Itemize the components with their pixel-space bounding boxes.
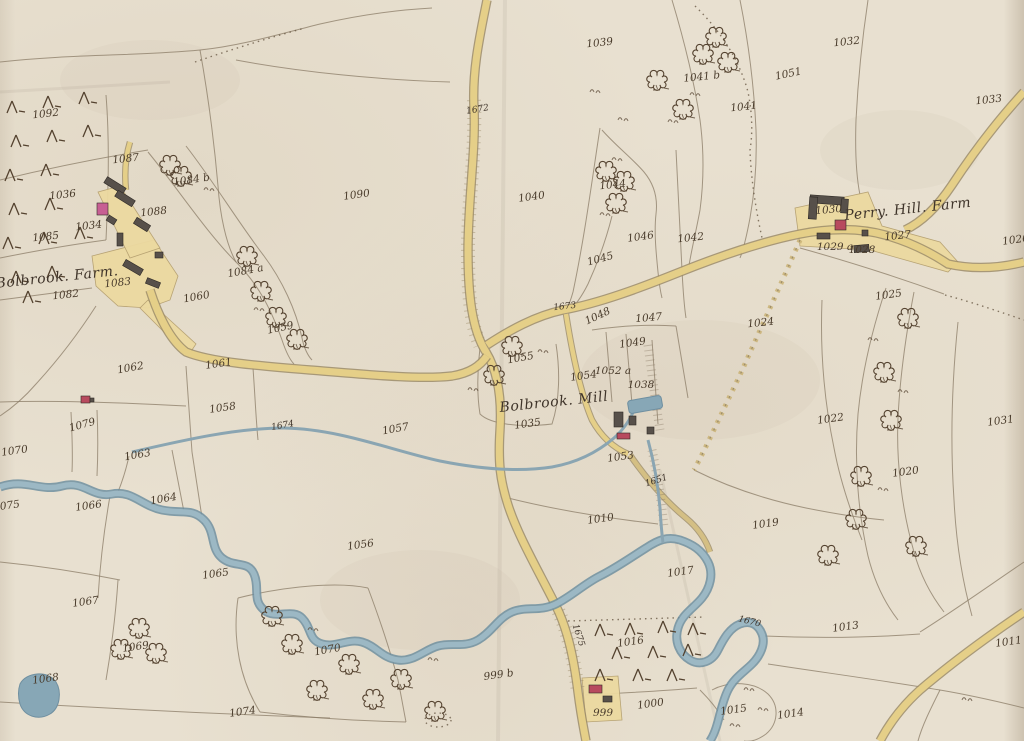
parcel-number-label: 1057	[381, 421, 410, 438]
grass-tuft-icon	[962, 698, 972, 701]
tree-icon	[673, 99, 695, 119]
parcel-number-label: 999 b	[483, 667, 515, 683]
parcel-number-label: 1024	[747, 316, 775, 331]
plantation-icon	[667, 669, 685, 681]
tree-icon	[693, 44, 715, 64]
parcel-number-label: 1055	[506, 350, 535, 367]
parcel-number-label: 1065	[202, 566, 230, 582]
tree-icon	[881, 410, 903, 430]
parcel-number-label: 1020	[892, 464, 920, 480]
tree-icon	[706, 27, 728, 47]
plantation-icon	[3, 237, 21, 249]
parcel-number-label: 999	[593, 707, 613, 719]
parcel-number-label: 1079	[68, 416, 97, 435]
parcel-number-label: 1016	[617, 634, 645, 650]
parcel-number-label: 1041	[730, 100, 758, 115]
tree-icon	[363, 689, 385, 709]
tree-icon	[718, 52, 740, 72]
tree-icon	[287, 329, 309, 349]
parcel-number-label: 1036	[49, 188, 77, 203]
tree-icon	[425, 701, 447, 721]
place-name-label: Bolbrook. Mill	[498, 389, 609, 416]
grass-tuft-icon	[600, 213, 610, 216]
tree-icon	[647, 70, 669, 90]
grass-tuft-icon	[744, 688, 754, 691]
outbuilding	[90, 398, 94, 402]
plantation-icon	[23, 291, 41, 303]
outbuilding	[155, 252, 163, 258]
grass-tuft-icon	[878, 488, 888, 491]
parcel-number-label: 1042	[677, 231, 705, 246]
parcel-number-label: 1031	[987, 413, 1015, 429]
parcel-number-label: 1056	[347, 537, 375, 553]
tree-icon	[307, 680, 329, 700]
parcel-number-label: 1019	[752, 516, 780, 532]
plantation-icon	[648, 646, 666, 658]
parcel-number-label: 1044	[599, 178, 627, 193]
parcel-number-label: 1011	[995, 634, 1023, 650]
grass-tuft-icon	[612, 158, 622, 161]
grass-tuft-icon	[468, 388, 478, 391]
tree-icon	[906, 536, 928, 556]
parcel-number-label: 1063	[123, 447, 152, 464]
plantation-icon	[625, 623, 643, 635]
parcel-number-label: 1064	[149, 491, 177, 507]
historic-map: 167216731674167516701651 10391041 b10411…	[0, 0, 1024, 741]
grass-tuft-icon	[618, 118, 628, 121]
parcel-number-label: 1075	[0, 498, 21, 514]
parcel-number-label: 1041 b	[683, 69, 721, 85]
parcel-number-label: 1070	[1, 443, 29, 459]
tree-icon	[874, 362, 896, 382]
parcel-number-label: 1010	[587, 511, 615, 527]
outbuilding	[614, 412, 623, 427]
outbuilding	[817, 233, 830, 239]
outbuilding	[647, 427, 654, 434]
route-number-label: 1674	[271, 419, 296, 433]
tree-icon	[282, 634, 304, 654]
grass-tuft-icon	[590, 90, 600, 93]
parcel-number-label: 1022	[817, 411, 845, 427]
parcel-number-label: 1074	[229, 704, 257, 720]
house	[97, 203, 108, 215]
parcel-number-label: 1017	[667, 564, 695, 580]
tree-icon	[606, 193, 628, 213]
parcel-number-label: 1025	[875, 287, 903, 303]
house	[81, 396, 90, 403]
parcel-number-label: 1061	[205, 356, 233, 372]
parcel-number-label: 1028	[849, 244, 876, 256]
house	[617, 433, 630, 439]
parcel-number-label: 1062	[116, 360, 145, 377]
house	[589, 685, 602, 693]
tree-icon	[160, 155, 182, 175]
parcel-number-label: 1034	[75, 219, 103, 234]
tree-icon	[146, 643, 168, 663]
parcel-number-label: 1045	[586, 250, 615, 269]
grass-tuft-icon	[204, 188, 214, 191]
tree-icon	[851, 466, 873, 486]
parcel-number-label: 1090	[343, 187, 371, 203]
parcel-number-label: 1084 b	[173, 171, 211, 188]
grass-tuft-icon	[538, 350, 548, 353]
parcel-number-label: 1014	[777, 706, 805, 722]
tree-icon	[818, 545, 840, 565]
grass-tuft-icon	[730, 724, 740, 727]
outbuilding	[117, 233, 123, 246]
parcel-number-label: 1035	[514, 416, 542, 432]
parcel-number-label: 1030	[815, 203, 843, 217]
plantation-icon	[11, 135, 29, 147]
parcel-number-label: 1092	[32, 107, 60, 122]
tree-icon	[339, 654, 361, 674]
parcel-number-label: 1015	[720, 702, 748, 718]
ponds	[19, 395, 663, 717]
parcel-number-label: 1082	[52, 288, 80, 303]
plantation-icon	[47, 130, 65, 142]
parcel-number-label: 1088	[140, 205, 168, 220]
parcel-number-label: 1087	[112, 152, 140, 167]
outbuilding	[603, 696, 612, 702]
outbuilding	[862, 230, 868, 236]
farmyards	[92, 186, 958, 722]
parcel-number-label: 1040	[518, 189, 546, 205]
plantation-icon	[633, 669, 651, 681]
parcel-number-label: 1038	[628, 379, 655, 391]
parcel-number-label: 1066	[75, 498, 103, 514]
parcel-number-label: 1013	[832, 619, 860, 635]
parcel-number-label: 1047	[635, 311, 663, 325]
parcel-number-label: 1039	[586, 36, 614, 51]
parcel-number-label: 1046	[627, 229, 655, 245]
grass-tuft-icon	[428, 658, 438, 661]
parcel-number-label: 1084 a	[227, 262, 265, 280]
tree-icon	[251, 281, 273, 301]
parcel-number-label: 1058	[209, 400, 237, 416]
parcel-number-label: 1067	[72, 594, 100, 610]
parcel-number-label: 1051	[774, 65, 803, 82]
plantation-icon	[7, 101, 25, 113]
plantation-icon	[41, 164, 59, 176]
parcel-number-label: 1053	[607, 449, 635, 465]
grass-tuft-icon	[254, 308, 264, 311]
plantation-icon	[595, 624, 613, 636]
grass-tuft-icon	[868, 338, 878, 341]
plantation-icon	[83, 125, 101, 137]
parcel-number-label: 1060	[182, 289, 211, 306]
parcel-number-label: 1000	[637, 696, 665, 712]
plantation-icon	[9, 203, 27, 215]
grass-tuft-icon	[668, 120, 678, 123]
parcel-number-label: 1033	[975, 93, 1003, 108]
plantation-icon	[688, 623, 706, 635]
tree-icon	[129, 618, 151, 638]
grass-tuft-icon	[758, 708, 768, 711]
parcel-number-label: 1032	[833, 35, 861, 50]
plantation-icon	[658, 621, 676, 633]
map-canvas: 167216731674167516701651 10391041 b10411…	[0, 0, 1024, 741]
parcel-number-label: 1026	[1002, 232, 1024, 248]
parcel-number-label: 1052 a	[595, 365, 631, 377]
tree-icon	[391, 669, 413, 689]
outbuilding	[629, 416, 636, 425]
